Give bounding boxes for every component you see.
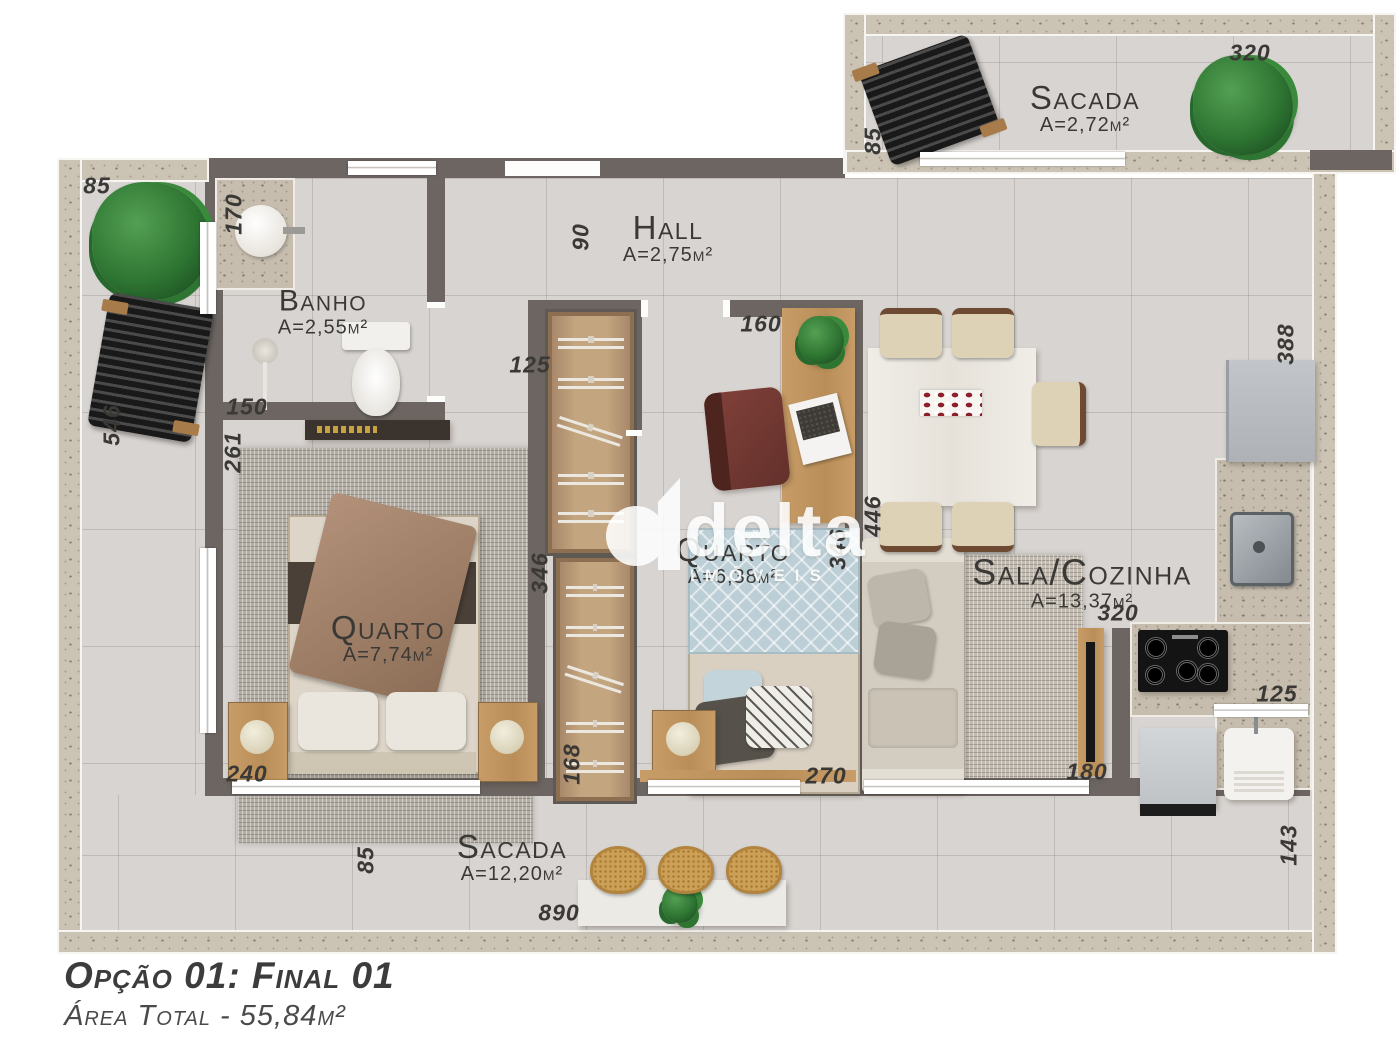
room-label-banho: Banho A=2,55m²: [278, 287, 368, 338]
dim-quarto1-346: 346: [527, 552, 554, 593]
room-area: A=7,74m²: [331, 645, 445, 665]
top-balcony-corner-wall: [1310, 150, 1392, 170]
dim-kitchen-125: 125: [1256, 681, 1297, 708]
floor-plan: Sacada A=2,72m² Hall A=2,75m² Banho A=2,…: [0, 0, 1400, 1062]
dim-quarto2-270: 270: [805, 763, 846, 790]
room-label-sala: Sala/Cozinha A=13,37m²: [972, 554, 1192, 611]
lamp-bedroom2: [666, 722, 700, 756]
bed-headboard: [288, 752, 476, 774]
exterior-wall-left: [57, 158, 82, 954]
dim-sacada-bottom-85: 85: [353, 846, 380, 874]
tv-panel: [1078, 628, 1104, 776]
room-name: Banho: [278, 287, 368, 318]
dim-balcony-85: 85: [83, 173, 111, 200]
bed2-pillow-pattern: [746, 686, 812, 748]
wicker-chair-2: [658, 846, 714, 894]
bedroom1-balcony-door: [200, 548, 216, 733]
bath-right-wall: [427, 178, 445, 308]
bath-top-window: [348, 161, 436, 175]
dim-quarto1-240: 240: [226, 761, 267, 788]
kitchen-divider-wall: [1112, 628, 1130, 790]
dresser: [305, 420, 450, 440]
kitchen-sink: [1230, 512, 1294, 586]
bedroom2-door-jamb-right: [723, 300, 730, 317]
dim-quarto1-261: 261: [220, 431, 247, 472]
room-area: A=2,55m²: [278, 317, 368, 337]
room-name: Quarto: [331, 611, 445, 645]
room-label-hall: Hall A=2,75m²: [623, 211, 713, 265]
bath-window: [200, 222, 216, 314]
dim-quarto2-160: 160: [740, 311, 781, 338]
dim-sacada-bottom-890: 890: [538, 900, 579, 927]
room-name: Sacada: [1030, 81, 1140, 115]
dim-balcony-546: 546: [99, 404, 126, 445]
room-name: Sala/Cozinha: [972, 554, 1192, 591]
laptop-keyboard: [796, 402, 840, 440]
bedroom2-door-jamb-left: [641, 300, 648, 317]
dining-chair-5: [1032, 382, 1086, 446]
dresser-decor: [317, 426, 377, 433]
dining-chair-1: [880, 308, 942, 358]
sofa-pillow-1: [866, 567, 932, 628]
stove-cooktop: [1138, 630, 1228, 692]
shower-head: [252, 338, 278, 364]
room-area: A=13,37m²: [972, 591, 1192, 611]
sofa-seat: [868, 688, 958, 748]
bedroom1-bottom-balcony-door: [232, 780, 480, 794]
room-area: A=12,20m²: [457, 864, 567, 884]
bed-throw-blanket: [288, 492, 478, 708]
laundry-sink: [1224, 728, 1294, 800]
watermark-logo-bar-icon: [658, 478, 680, 570]
watermark: delta IMÓVEIS: [600, 470, 860, 600]
dim-sacada-top-85: 85: [860, 127, 887, 155]
living-bottom-balcony-door: [864, 780, 1089, 794]
dim-banho-170: 170: [221, 193, 248, 234]
dim-kitchen-143: 143: [1276, 824, 1303, 865]
potted-plant-top-balcony: [1193, 55, 1293, 155]
lamp-left: [240, 720, 274, 754]
plan-title: Opção 01: Final 01: [64, 955, 395, 997]
bed-pillow-right: [386, 692, 466, 750]
bed-pillow-left: [298, 692, 378, 750]
room-label-sacada-top: Sacada A=2,72m²: [1030, 81, 1140, 135]
bath-door-jamb-bottom: [427, 396, 445, 402]
dim-sacada-top-320: 320: [1229, 40, 1270, 67]
sink-faucet: [283, 227, 305, 234]
table-centerpiece-flowers: [920, 390, 982, 416]
watermark-sub: IMÓVEIS: [690, 566, 831, 586]
room-area: A=2,72m²: [1030, 115, 1140, 135]
wicker-chair-1: [590, 846, 646, 894]
closet-jamb: [626, 430, 642, 436]
exterior-wall-right: [1312, 168, 1337, 954]
lamp-right: [490, 720, 524, 754]
living-top-balcony-door: [920, 152, 1125, 166]
dim-sala-388: 388: [1273, 323, 1300, 364]
entry-door-opening: [505, 161, 600, 176]
sofa-pillow-2: [873, 620, 938, 680]
exterior-wall-bottom: [57, 930, 1337, 954]
bath-door-jamb-top: [427, 302, 445, 308]
dim-hall-90: 90: [568, 223, 595, 251]
room-name: Hall: [623, 211, 713, 245]
plan-total-area: Área Total - 55,84m²: [64, 1000, 346, 1033]
dim-kitchen-180: 180: [1066, 759, 1107, 786]
top-balcony-wall-top: [843, 13, 1396, 36]
dim-closet-168: 168: [559, 743, 586, 784]
washing-machine: [1140, 728, 1216, 808]
room-name: Sacada: [457, 830, 567, 864]
dining-table: [868, 348, 1036, 506]
desk-plant: [798, 316, 844, 364]
dim-kitchen-320: 320: [1097, 600, 1138, 627]
watermark-logo-icon: [606, 506, 666, 566]
tv: [1086, 642, 1095, 762]
dining-chair-2: [952, 308, 1014, 358]
room-area: A=2,75m²: [623, 245, 713, 265]
sofa: [862, 538, 964, 793]
dining-chair-3: [880, 502, 942, 552]
room-label-quarto1: Quarto A=7,74m²: [331, 611, 445, 665]
dim-closet-125: 125: [509, 352, 550, 379]
wicker-chair-3: [726, 846, 782, 894]
watermark-brand: delta: [684, 488, 867, 573]
toilet-bowl: [352, 348, 400, 416]
dim-banho-150: 150: [226, 394, 267, 421]
dining-chair-4: [952, 502, 1014, 552]
room-label-sacada-bottom: Sacada A=12,20m²: [457, 830, 567, 884]
bedroom2-bottom-balcony-door: [648, 780, 800, 794]
fridge: [1226, 360, 1315, 462]
tree-left-balcony: [92, 182, 210, 300]
